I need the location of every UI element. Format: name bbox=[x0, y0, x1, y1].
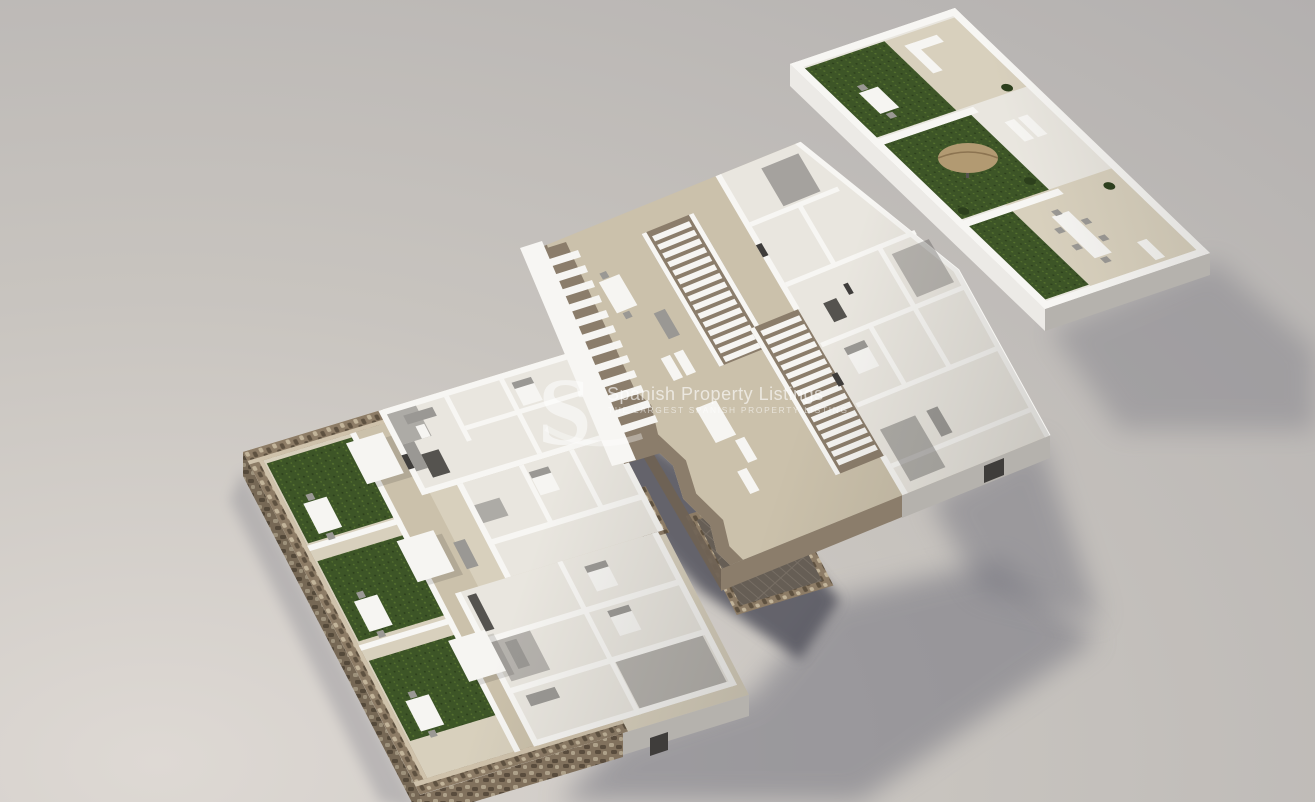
render-canvas: S Spanish Property Listings THE LARGEST … bbox=[0, 0, 1315, 802]
watermark-tagline: THE LARGEST SPANISH PROPERTY LISTING bbox=[608, 405, 849, 415]
parasol-canopy bbox=[938, 143, 998, 173]
floorplan-render: S Spanish Property Listings THE LARGEST … bbox=[0, 0, 1315, 802]
watermark-logo-letter: S bbox=[538, 358, 591, 465]
watermark-title: Spanish Property Listings bbox=[607, 384, 824, 404]
